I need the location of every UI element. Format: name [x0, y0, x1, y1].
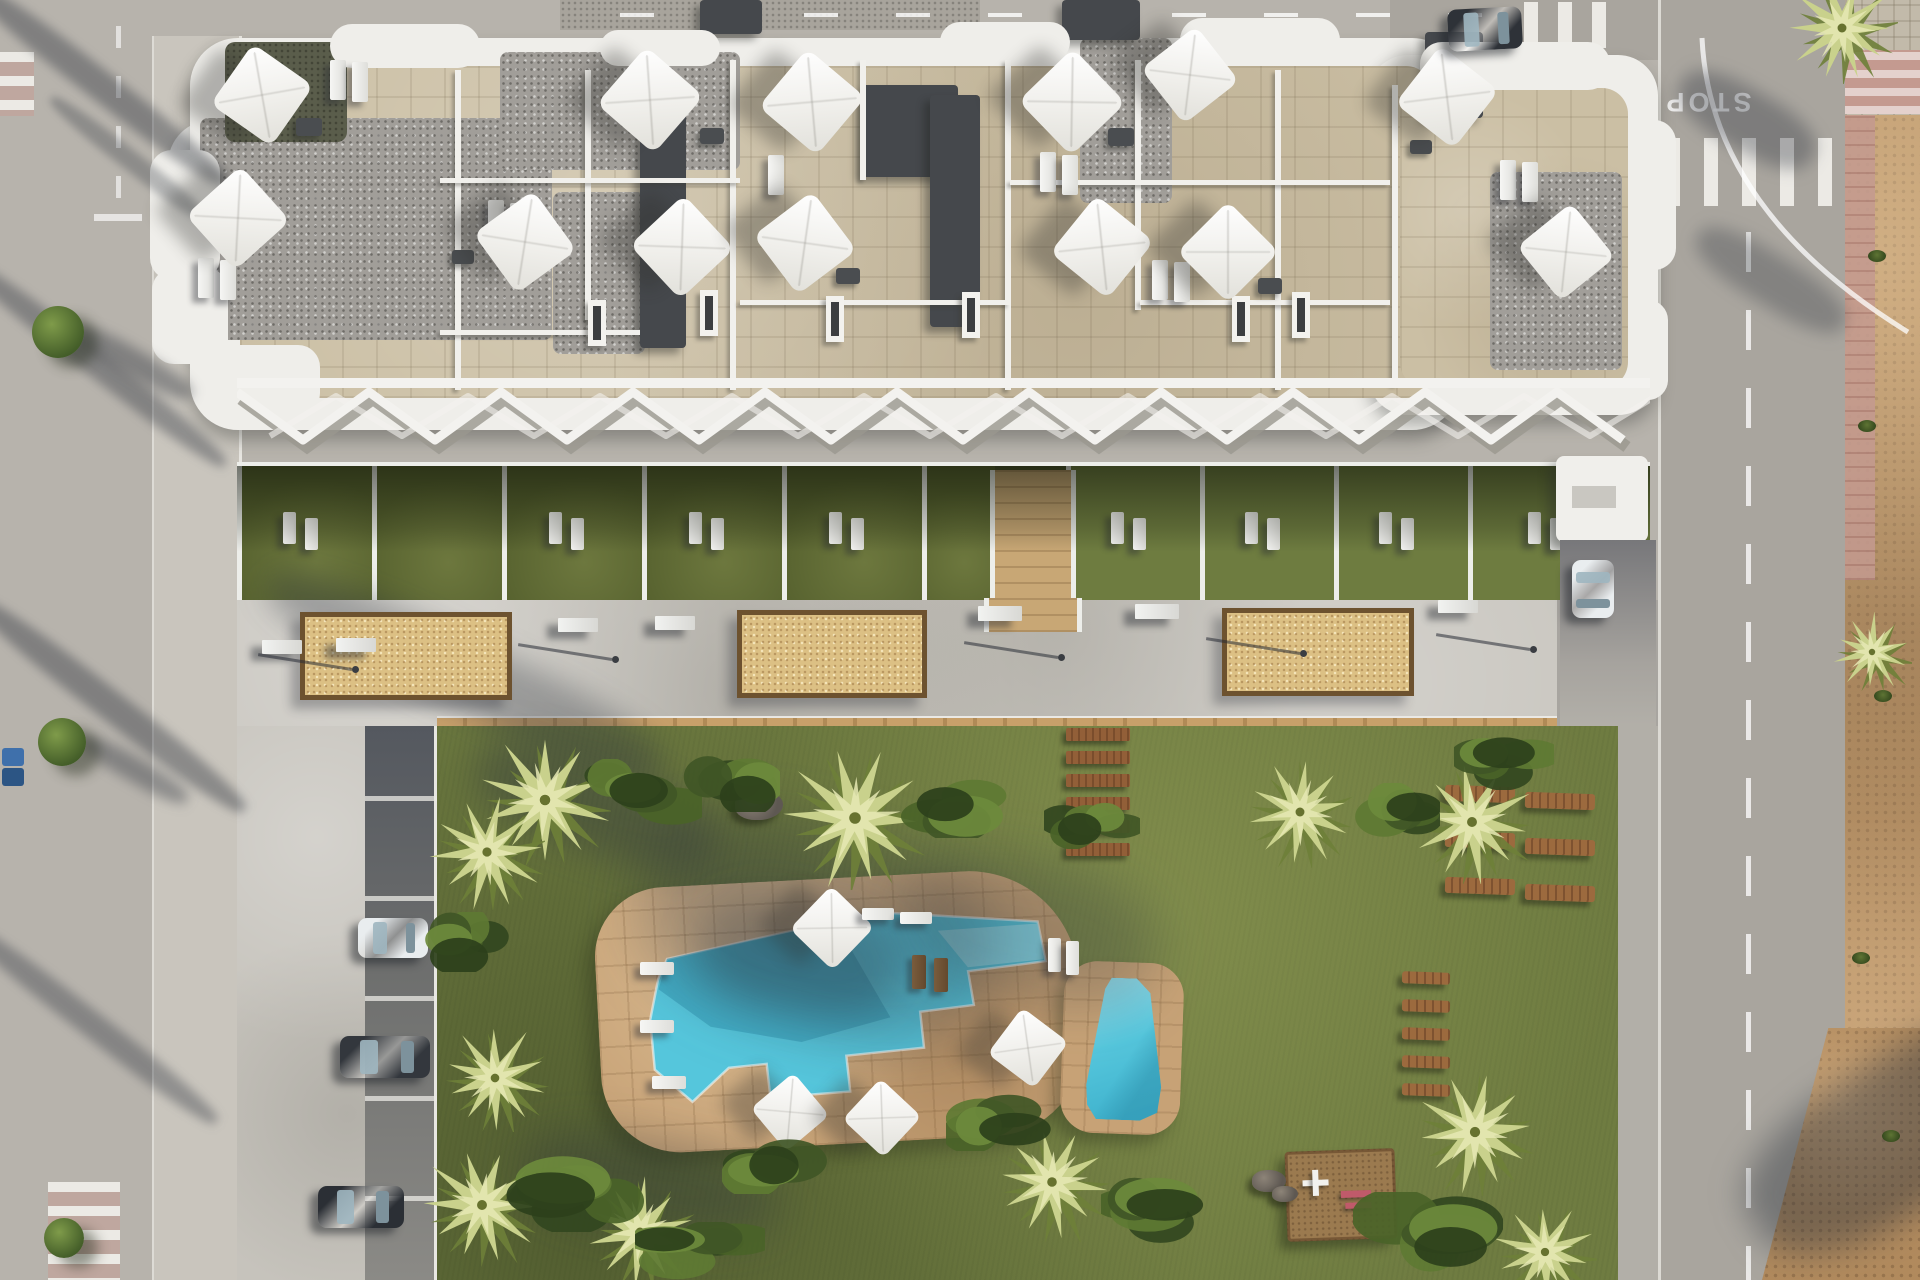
private-garden [372, 466, 507, 604]
terrace-wall [1275, 70, 1281, 390]
terrace-furniture [836, 268, 860, 284]
wood-lounger [1525, 792, 1596, 810]
wood-lounger [1525, 838, 1596, 856]
garden-lounger [1267, 518, 1280, 550]
private-garden [1200, 466, 1339, 604]
private-garden [502, 466, 647, 604]
pool-lounger [862, 908, 894, 920]
garden-lounger [1245, 512, 1258, 544]
lamp-post [1530, 646, 1537, 653]
car-glass-rear [401, 1041, 414, 1073]
car-glass [360, 1040, 378, 1074]
car-glass-rear [406, 923, 416, 953]
deck-bench [1135, 604, 1179, 619]
lamp-post [352, 666, 359, 673]
playground-pad [1284, 1148, 1397, 1242]
terrace-wall [1135, 60, 1141, 310]
aerial-site-render: STOP [0, 0, 1920, 1280]
roof-stairwell [700, 0, 762, 34]
terrace-wall [1392, 85, 1398, 385]
car-dark-street [1447, 6, 1523, 52]
private-garden [922, 466, 995, 604]
road-dash-line-left [116, 26, 121, 226]
sand-planter [737, 610, 927, 698]
play-equipment-pink [1341, 1190, 1371, 1198]
dirt-weed [1882, 1130, 1900, 1142]
garden-lounger [305, 518, 318, 550]
stone-path-gardens [990, 470, 1076, 600]
car-white-parking [358, 918, 428, 958]
terrace-furniture [452, 250, 474, 264]
deck-bench [655, 616, 695, 630]
garden-lounger [1401, 518, 1414, 550]
private-garden [1066, 466, 1205, 604]
pool-lounger-wood [934, 958, 948, 992]
sand-planter [300, 612, 512, 700]
roof-lounger [768, 155, 784, 195]
car-dark-parking-2 [318, 1186, 404, 1228]
pergola-zigzag [237, 378, 1650, 464]
lamp-post [612, 656, 619, 663]
car-white-ramp [1572, 560, 1614, 618]
car-glass [337, 1190, 354, 1224]
dirt-weed [1874, 690, 1892, 702]
deck-bench [336, 638, 376, 652]
roof-skylight [826, 296, 844, 342]
wood-lounger [1402, 1055, 1450, 1069]
street-tree [38, 718, 86, 766]
car-dark-parking [340, 1036, 430, 1078]
play-equipment-pink [1345, 1202, 1371, 1209]
deck-bench [558, 618, 598, 632]
roof-skylight [588, 300, 606, 346]
pool-lounger [652, 1076, 686, 1089]
terrace-wall [1005, 60, 1011, 390]
wood-step-plank [1066, 797, 1130, 810]
roof-skylight [1232, 296, 1250, 342]
driveway-right [1618, 726, 1658, 1280]
terrace-wall [730, 60, 736, 390]
roof-lounger [352, 62, 368, 102]
terrace-furniture [1258, 278, 1282, 294]
car-glass [373, 922, 387, 954]
garden-lounger [1111, 512, 1124, 544]
garden-lounger [283, 512, 296, 544]
roof-skylight [1292, 292, 1310, 338]
wood-step-plank [1066, 843, 1130, 856]
wood-lounger [1402, 971, 1450, 985]
car-glass [1463, 12, 1480, 47]
terrace-furniture [1410, 140, 1432, 154]
garden-lounger [549, 512, 562, 544]
roof-lounger [1522, 162, 1538, 202]
garden-lounger [689, 512, 702, 544]
garden-lounger [829, 512, 842, 544]
dirt-weed [1858, 420, 1876, 432]
car-glass [1576, 572, 1610, 584]
dirt-weed [1852, 952, 1870, 964]
terrace-wall [585, 70, 591, 320]
car-glass-rear [376, 1191, 388, 1223]
deck-bench [262, 640, 302, 654]
pool-lounger [640, 1020, 674, 1033]
building-edge-bump [1630, 120, 1676, 270]
garden-lounger [1379, 512, 1392, 544]
roof-lounger [1500, 160, 1516, 200]
car-glass-rear [1576, 599, 1610, 607]
parking-stall-line [365, 896, 437, 901]
private-garden [782, 466, 927, 604]
stop-bar-left [94, 214, 142, 221]
road-dash-line-right [1746, 232, 1751, 1280]
terrace-furniture [1108, 128, 1134, 146]
crosswalk-top-left [0, 52, 34, 116]
private-garden [642, 466, 787, 604]
deck-bench [978, 606, 1022, 621]
parking-stall-line [365, 796, 437, 801]
lamp-post [1300, 650, 1307, 657]
terrace-furniture [700, 128, 724, 144]
wood-step-plank [1066, 774, 1130, 787]
garden-lounger [851, 518, 864, 550]
street-tree [32, 306, 84, 358]
parking-stall-line [365, 1096, 437, 1101]
building-edge-bump [940, 22, 1070, 62]
garden-lounger [571, 518, 584, 550]
dirt-weed [1868, 250, 1886, 262]
wood-step-plank [1066, 751, 1130, 764]
pool-lounger [640, 962, 674, 975]
terrace-wall [455, 70, 461, 390]
roof-lounger [1152, 260, 1168, 300]
recycling-bin [2, 748, 24, 766]
roof-skylight [962, 292, 980, 338]
terrace-wall [440, 178, 740, 183]
wood-lounger [1402, 999, 1450, 1013]
roof-lounger [330, 60, 346, 100]
wood-lounger [1525, 884, 1596, 902]
garden-lounger [1133, 518, 1146, 550]
pool-lounger [1066, 941, 1079, 975]
roof-lounger [198, 258, 214, 298]
terrace-furniture [296, 118, 322, 136]
car-glass-rear [1497, 12, 1509, 44]
recycling-bin [2, 768, 24, 786]
terrace-wall [860, 60, 866, 180]
pool-lounger [1048, 938, 1061, 972]
roof-lounger [1040, 152, 1056, 192]
private-gardens-row [237, 462, 1650, 609]
lamp-post [1058, 654, 1065, 661]
street-tree [44, 1218, 84, 1258]
roof-skylight [700, 290, 718, 336]
garden-lounger [711, 518, 724, 550]
wood-lounger [1402, 1083, 1450, 1097]
terrace-wall [440, 330, 640, 335]
pool-lounger-wood [912, 955, 926, 989]
wood-lounger [1445, 785, 1516, 803]
rooftop-box-right [1556, 456, 1648, 542]
wood-step-plank [1066, 820, 1130, 833]
deck-bench [1438, 600, 1478, 613]
wood-lounger [1445, 877, 1516, 895]
wood-step-plank [1066, 728, 1130, 741]
roof-lounger [1062, 155, 1078, 195]
sand-planter [1222, 608, 1414, 696]
parking-stall-line [365, 996, 437, 1001]
roof-lounger [1174, 262, 1190, 302]
wood-lounger [1445, 831, 1516, 849]
play-equipment-white [1312, 1170, 1319, 1196]
pool-lounger [900, 912, 932, 924]
garden-lounger [1528, 512, 1541, 544]
wood-lounger [1402, 1027, 1450, 1041]
private-garden [1334, 466, 1473, 604]
roof-stairwell [1062, 0, 1140, 40]
